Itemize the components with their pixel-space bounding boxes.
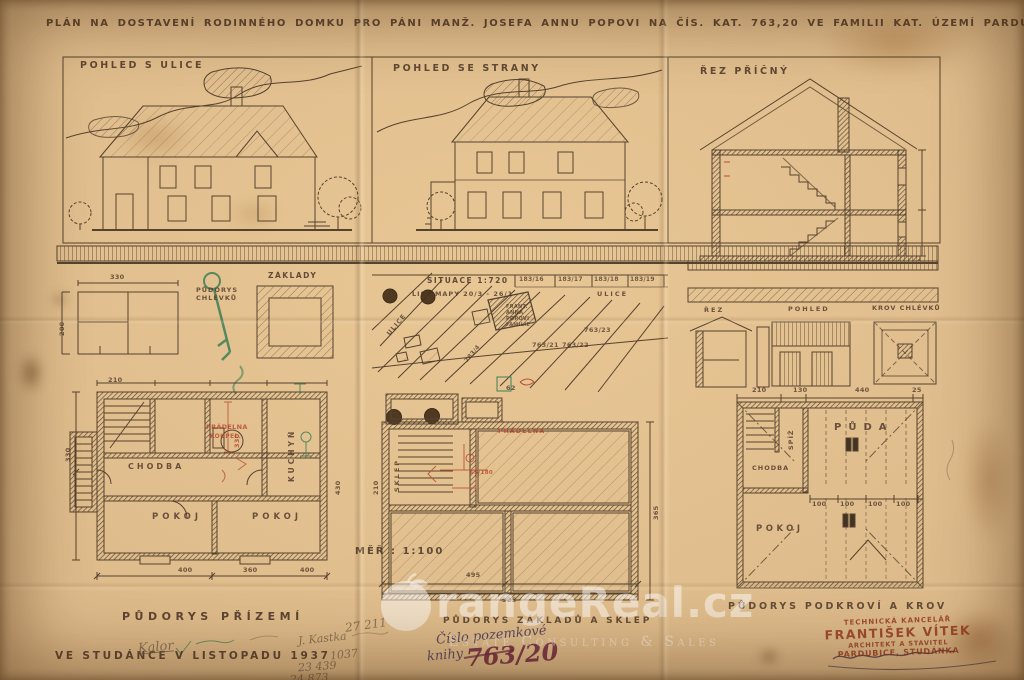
dim-label: 25	[912, 386, 922, 394]
attic-plan-caption: PŮDORYS PODKROVÍ A KROV	[728, 601, 947, 612]
dim-label: 360	[243, 566, 257, 574]
dim-label: 440	[855, 386, 869, 394]
dim-label: 210	[108, 376, 122, 384]
scale-label: MĚŘ : 1:100	[355, 546, 444, 557]
room-label: POKOJ	[152, 512, 202, 522]
foundations-label: ZÁKLADY	[268, 271, 317, 280]
ground-plan-caption: PŮDORYS PŘÍZEMÍ	[122, 610, 304, 623]
dim-label: 400	[178, 566, 192, 574]
room-label-hall: CHODBA	[128, 462, 184, 471]
small-section-label: ŘEZ	[704, 306, 724, 314]
dim-label: 210	[372, 481, 380, 495]
dim-label: 400	[300, 566, 314, 574]
owner-name: FAMILIE	[506, 322, 530, 328]
room-label: POKOJ	[252, 512, 302, 522]
cross-section-label: ŘEZ PŘÍČNÝ	[700, 66, 790, 77]
street-label: ULICE	[597, 290, 628, 298]
room-label-kitchen: KUCHYŇ	[287, 429, 296, 482]
pencil-note: 24 873	[290, 671, 329, 680]
dim-label: 210	[752, 386, 766, 394]
dim-label: 200	[58, 322, 66, 336]
dim-label: 100	[840, 500, 854, 508]
pencil-note: Kalor	[137, 638, 174, 656]
site-plan-label: SITUACE 1:720	[427, 276, 509, 285]
room-label: POKOJ	[756, 524, 804, 534]
dim-label: 62	[506, 384, 516, 392]
place-date-label: VE STUDÁNCE V LISTOPADU 1937	[55, 650, 331, 662]
room-label-pantry: SPÍŽ	[787, 429, 795, 450]
dim-label: 130	[793, 386, 807, 394]
chlevky-plan-label: PŮDORYS CHLÉVKŮ	[196, 286, 254, 302]
basement-plan-caption: PŮDORYS ZÁKLADŮ A SKLEP	[443, 616, 652, 626]
room-label-laundry: PRÁDELNA	[498, 427, 545, 435]
parcel-number: 183/18	[594, 277, 619, 283]
room-label-cellar: SKLEP	[393, 459, 401, 492]
dim-label: 100	[812, 500, 826, 508]
small-roof-label: KROV CHLÉVKŮ	[872, 304, 941, 312]
red-note: 65/180	[470, 470, 493, 476]
dim-label: 495	[466, 571, 480, 579]
dim-label: 330	[64, 448, 72, 462]
parcel-number: 763/22	[562, 342, 589, 348]
dim-label: 430	[334, 481, 342, 495]
room-label-attic: PŮDA	[834, 422, 894, 433]
plan-line-art	[0, 0, 1024, 680]
dim-label: 925	[502, 596, 516, 604]
dim-label: 100	[868, 500, 882, 508]
dim-label: 330	[110, 273, 124, 281]
plan-title: PLÁN NA DOSTAVENÍ RODINNÉHO DOMKU PRO PÁ…	[46, 18, 1024, 29]
map-sheet-label: LIST MAPY 20/3 - 26/1	[412, 290, 513, 298]
photographed-blueprint: PLÁN NA DOSTAVENÍ RODINNÉHO DOMKU PRO PÁ…	[0, 0, 1024, 680]
red-dim-label: 330	[233, 434, 241, 448]
dim-label: 365	[652, 506, 660, 520]
dim-label: 100	[896, 500, 910, 508]
room-label-hall: CHODBA	[752, 464, 789, 472]
small-view-label: POHLED	[788, 305, 830, 313]
parcel-number: 183/17	[558, 277, 583, 283]
parcel-number: 763/23	[584, 327, 611, 333]
room-label-laundry: PRÁDELNA	[206, 424, 248, 430]
parcel-number: 763/21	[532, 342, 559, 348]
ink-note: knihy	[426, 646, 463, 664]
parcel-number: 183/19	[630, 277, 655, 283]
side-elevation-label: POHLED SE STRANY	[393, 63, 541, 74]
architect-stamp: TECHNICKÁ KANCELÁŘ FRANTIŠEK VÍTEK ARCHI…	[799, 614, 996, 661]
street-elevation-label: POHLED S ULICE	[80, 60, 204, 71]
parcel-number: 183/16	[519, 277, 544, 283]
